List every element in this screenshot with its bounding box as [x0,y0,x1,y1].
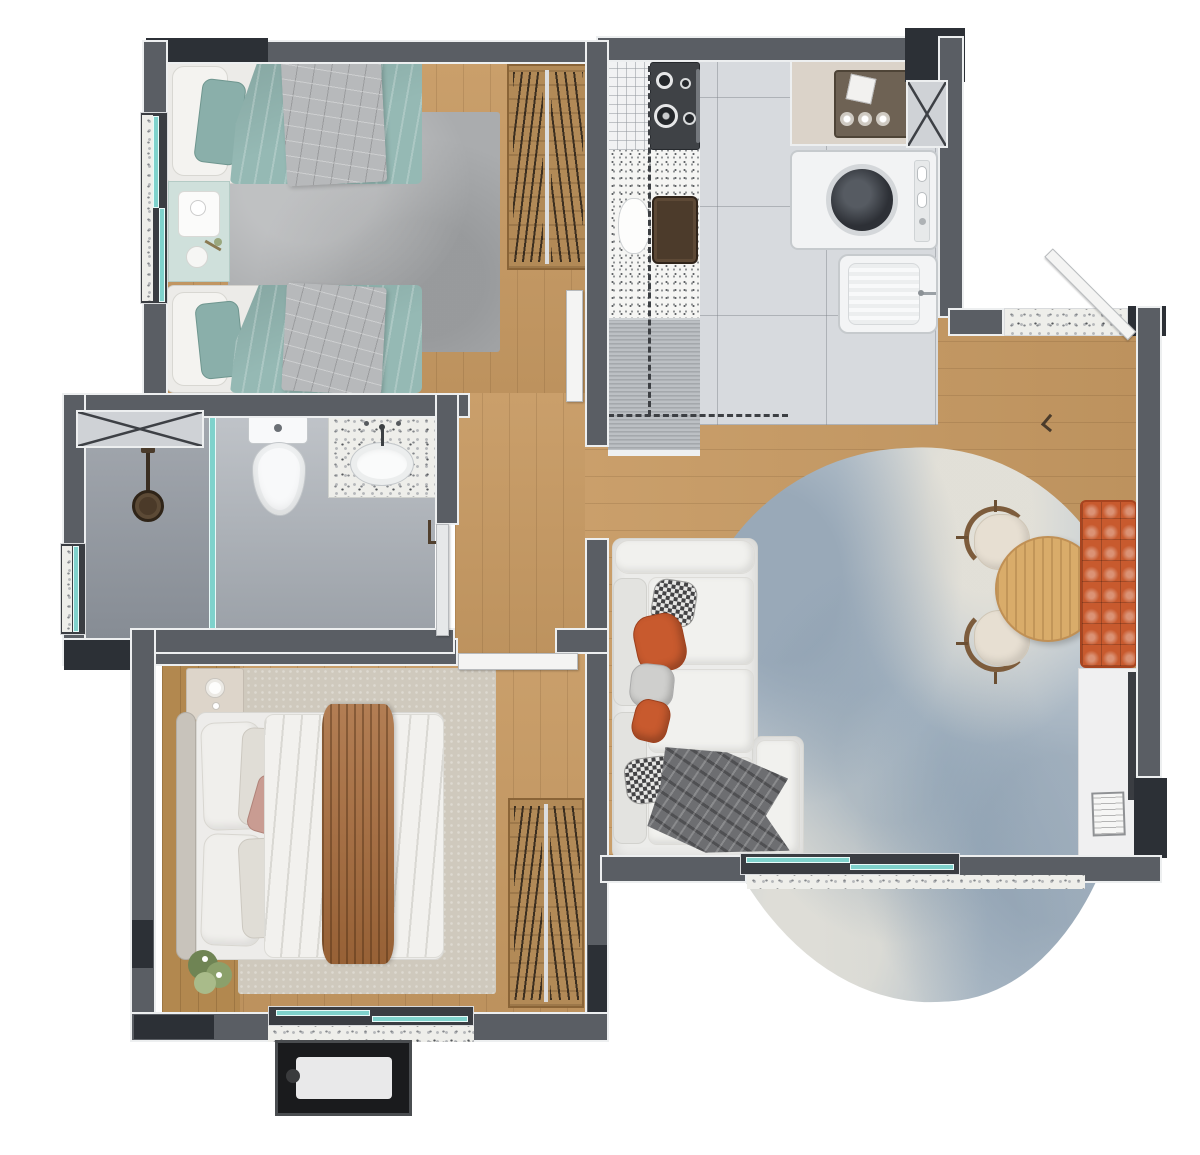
tufted-bench [1080,500,1137,668]
wall-dark-block [64,640,140,670]
wall [600,855,747,883]
burner-icon [656,72,673,89]
wardrobe-rail [544,804,548,1002]
bathroom-sink [350,442,414,486]
bedroom1-wardrobe [507,64,587,270]
washer-button [919,218,926,225]
chair-leg [994,500,997,512]
washer-knob [917,166,927,182]
washer-drum [826,164,898,236]
overhead-cabinet-line [648,66,651,416]
stainless-counter [608,318,700,452]
window-glass [160,209,164,301]
window-sill [142,115,153,301]
bedroom2-door [458,653,578,670]
basket-box [846,74,877,105]
ac-fan-icon [286,1069,300,1083]
window-glass [747,858,849,862]
faucet-spout [381,428,384,446]
washer-knob [917,192,927,208]
hanging-clothes-left [513,72,543,262]
wall [130,628,455,654]
wall [938,36,964,318]
wall [142,300,168,395]
faucet-handle [396,421,401,426]
towel-roll-icon [876,112,890,126]
chair-leg [956,642,968,645]
ac-unit [275,1040,412,1116]
bedroom2-wardrobe [508,798,584,1008]
plant-flower-icon [202,956,208,962]
window-glass [277,1011,369,1015]
burner-icon [654,104,678,128]
hanging-clothes-left [514,806,542,1000]
burner-icon [683,112,696,125]
window-glass [154,117,158,207]
window-glass [851,865,953,869]
balcony-ledge [747,875,1085,889]
bathroom-window [60,543,86,635]
headboard [176,712,196,960]
laundry-basin [848,263,920,325]
hanging-clothes-right [550,806,580,1000]
faucet-icon [918,290,924,296]
shower-head [132,490,164,522]
wall-dark-block [132,920,153,968]
ventilation-shaft [906,80,948,148]
wardrobe-rail [545,70,549,264]
window-sill [62,546,72,632]
balcony-window [740,853,960,875]
wall [555,628,609,654]
window-glass [74,547,78,631]
twin-bed-top-blanket [281,55,387,186]
shower-arm [146,452,150,492]
towel-roll-icon [858,112,872,126]
plant [184,944,236,998]
overhead-cabinet-line [608,414,788,417]
counter-end-trim [608,450,700,456]
hanging-clothes-right [551,72,583,262]
wall [435,393,459,525]
floor-plan [0,0,1200,1155]
nightstand-sprig-leaf [214,238,222,246]
caramel-throw [322,704,394,964]
chair-leg [994,672,997,684]
hallway-floor [455,393,585,662]
bedroom1-door [566,290,583,402]
magazines [1091,791,1126,836]
bedroom2-window [268,1006,474,1026]
kitchen-drying-rack [608,62,652,150]
towel-roll-icon [840,112,854,126]
plant-leaves [194,972,216,994]
table-lamp-icon [205,678,225,698]
bathroom-door [436,524,449,636]
bedroom1-window [140,112,168,304]
toilet-flush-button [274,424,282,432]
wall [142,40,168,118]
wall-dark-block [134,1015,214,1039]
oven-handle [696,69,700,143]
chair-leg [956,536,968,539]
plant-flower-icon [216,972,222,978]
cutting-board [652,196,698,264]
window-glass [373,1017,467,1021]
wall [130,628,156,1042]
wall [470,1012,609,1042]
washing-machine [790,150,938,250]
wall-dark-block [1134,778,1167,858]
faucet-handle [364,421,369,426]
wall [585,40,609,447]
laundry-sink [838,254,938,334]
nightstand-saucer [186,246,208,268]
sofa-armrest [615,540,755,574]
wall [948,308,1004,336]
ventilation-shaft [76,410,204,448]
kettle [618,198,650,254]
burner-icon [680,78,691,89]
nightstand-mug [190,200,206,216]
twin-bed-bottom-blanket [281,282,387,395]
wall [1136,306,1162,778]
ac-unit-top [296,1057,392,1099]
shower-glass-partition [210,418,215,640]
lamp-button [212,702,220,710]
cooktop [650,62,700,150]
